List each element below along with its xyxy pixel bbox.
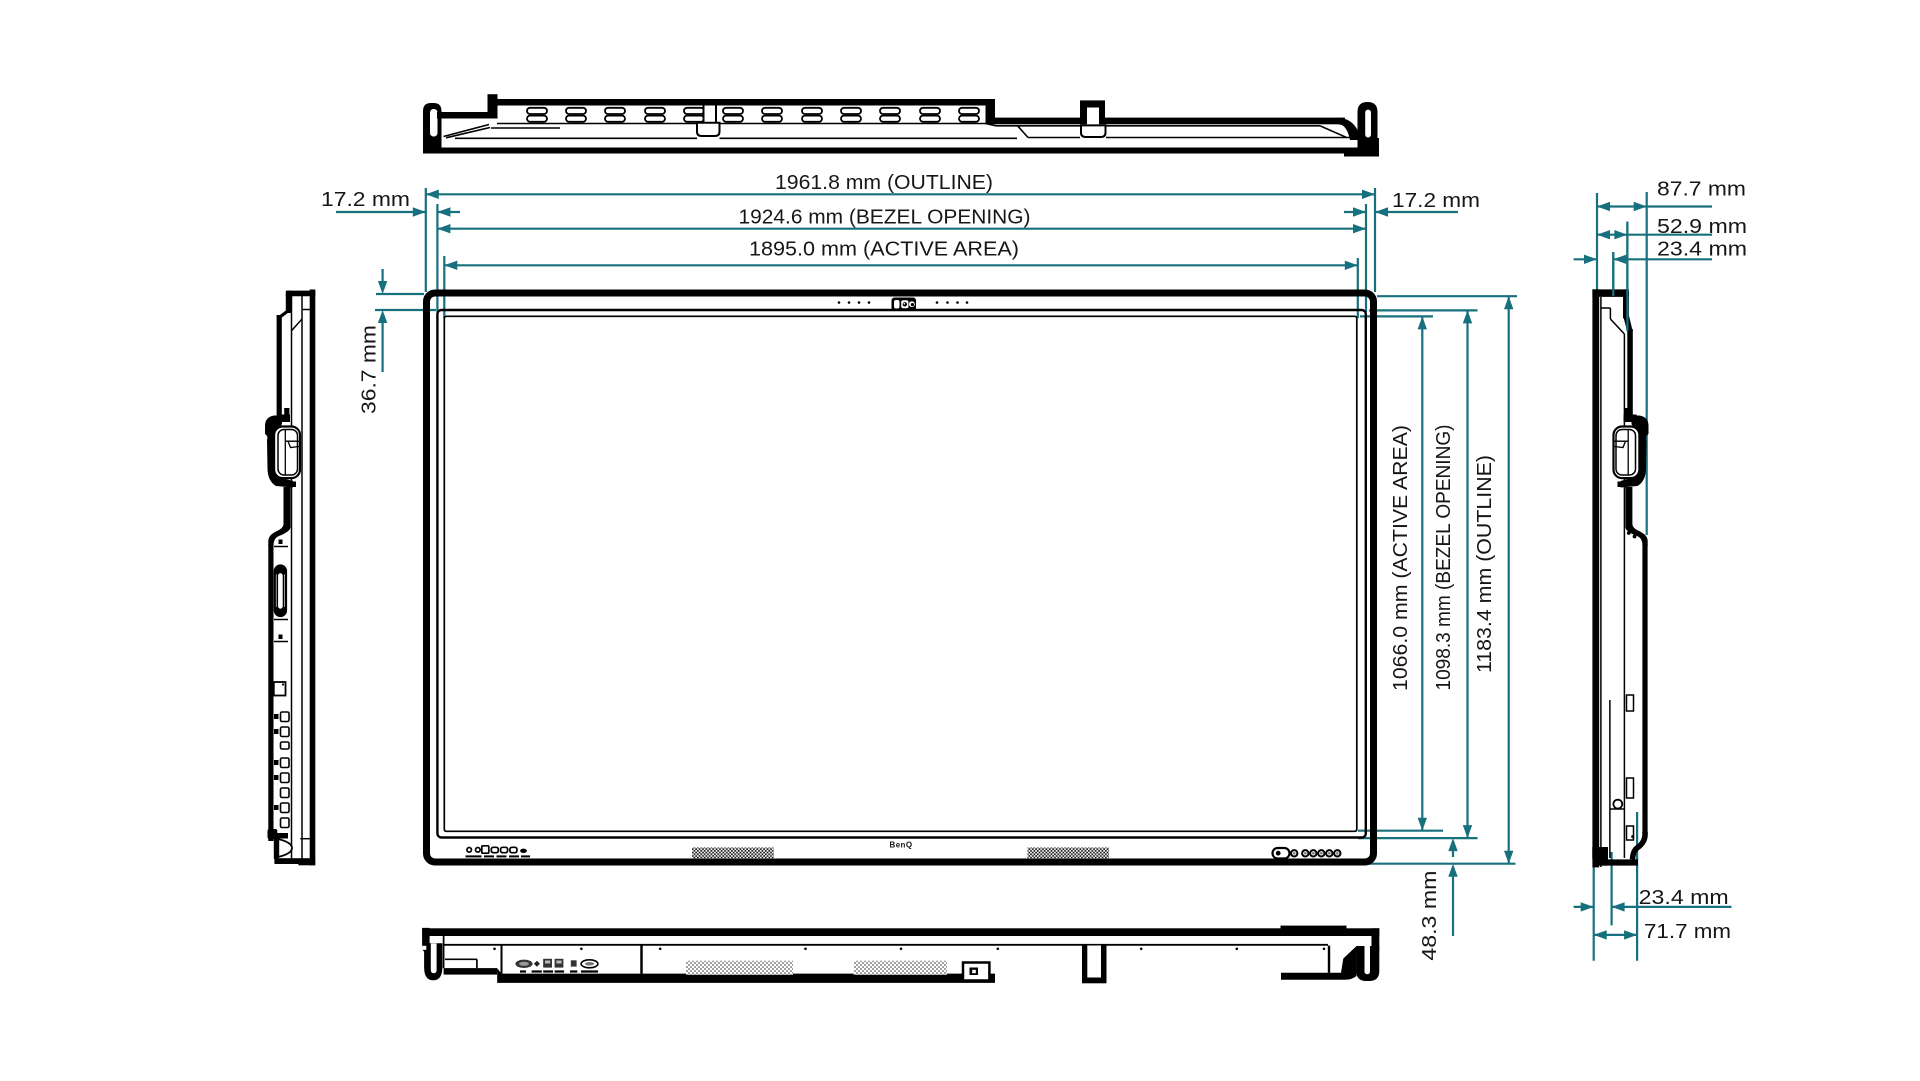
svg-text:1961.8 mm (OUTLINE): 1961.8 mm (OUTLINE) [775, 172, 993, 194]
svg-text:23.4 mm: 23.4 mm [1657, 239, 1747, 261]
svg-text:36.7 mm: 36.7 mm [358, 325, 380, 414]
svg-text:1895.0 mm (ACTIVE AREA): 1895.0 mm (ACTIVE AREA) [749, 239, 1019, 261]
svg-text:52.9 mm: 52.9 mm [1657, 216, 1747, 238]
svg-text:17.2 mm: 17.2 mm [1392, 190, 1480, 212]
svg-text:87.7 mm: 87.7 mm [1657, 179, 1746, 201]
svg-text:1183.4 mm (OUTLINE): 1183.4 mm (OUTLINE) [1474, 455, 1496, 673]
svg-text:23.4 mm: 23.4 mm [1639, 887, 1729, 909]
svg-text:71.7 mm: 71.7 mm [1644, 921, 1731, 943]
svg-text:17.2 mm: 17.2 mm [321, 189, 410, 211]
svg-text:BenQ: BenQ [890, 841, 913, 850]
svg-text:1098.3 mm (BEZEL OPENING): 1098.3 mm (BEZEL OPENING) [1433, 425, 1455, 691]
svg-text:48.3 mm: 48.3 mm [1419, 871, 1441, 961]
svg-text:1924.6 mm (BEZEL OPENING): 1924.6 mm (BEZEL OPENING) [739, 206, 1031, 228]
svg-text:1066.0 mm (ACTIVE AREA): 1066.0 mm (ACTIVE AREA) [1390, 425, 1412, 691]
